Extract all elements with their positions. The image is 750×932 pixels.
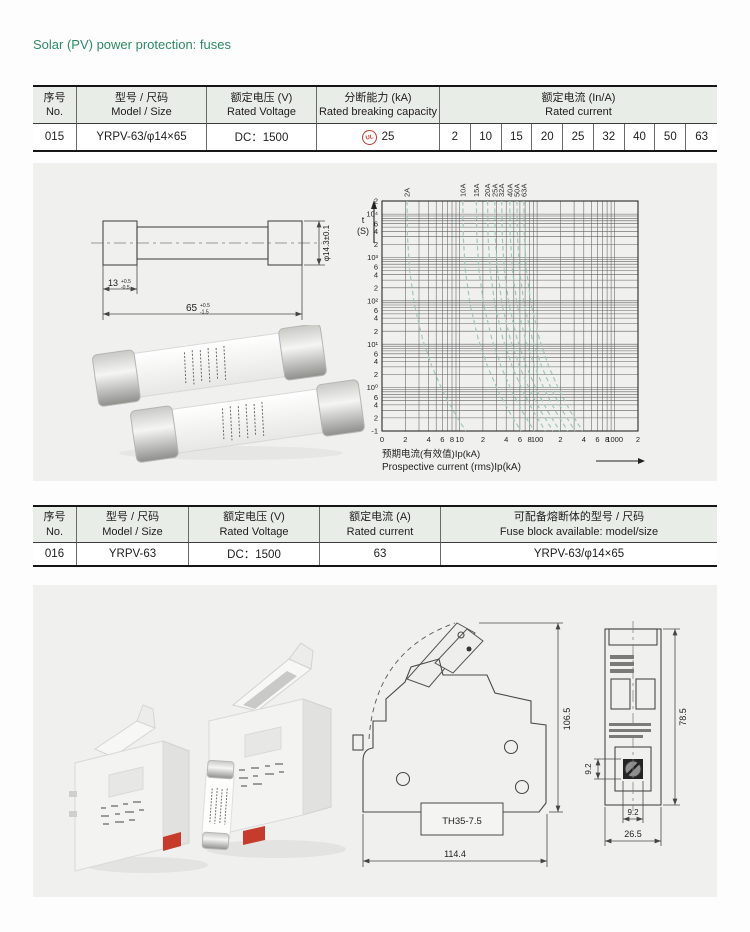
curve-40A xyxy=(510,201,568,431)
holder-left xyxy=(69,705,189,871)
x-tick: 6 xyxy=(440,435,444,444)
cell-current-20: 20 xyxy=(532,124,563,150)
dim-side: 9.2 xyxy=(585,763,593,775)
cell-current-63: 63 xyxy=(686,124,717,150)
header-current-en: Rated current xyxy=(545,105,612,119)
spec-table-015: 序号 No. 型号 / 尺码 Model / Size 额定电压 (V) Rat… xyxy=(33,85,717,152)
col-header-model: 型号 / 尺码 Model / Size xyxy=(77,507,189,543)
cell-voltage: DC：1500 xyxy=(207,124,317,150)
x-tick: 4 xyxy=(504,435,508,444)
header-no-en: No. xyxy=(46,105,63,119)
y-tick: 4 xyxy=(374,401,378,410)
fuse-tube xyxy=(137,227,268,259)
time-current-chart: 2A10A15A20A25A32A40A50A63A02468102468100… xyxy=(338,173,713,478)
header-current-zh: 额定电流 (A) xyxy=(349,510,411,524)
curve-label-63A: 63A xyxy=(519,184,528,197)
y-tick: 10² xyxy=(367,296,378,305)
y-axis-title-2: (S) xyxy=(357,226,369,236)
header-model-en: Model / Size xyxy=(102,525,163,539)
y-tick: 2 xyxy=(374,283,378,292)
header-voltage-zh: 额定电压 (V) xyxy=(231,91,293,105)
x-tick: 2 xyxy=(558,435,562,444)
x-tick: 6 xyxy=(518,435,522,444)
y-axis-title-1: t xyxy=(362,215,365,225)
cell-no: 016 xyxy=(33,543,77,565)
cell-model: YRPV-63 xyxy=(77,543,189,565)
fuse-cartridge xyxy=(201,760,235,850)
x-tick: 6 xyxy=(595,435,599,444)
dim-height: 78.5 xyxy=(678,708,688,726)
dim-diameter: φ14.3±0.1 xyxy=(322,224,331,261)
x-tick: 10 xyxy=(455,435,463,444)
header-breaking-zh: 分断能力 (kA) xyxy=(344,91,411,105)
cell-current-50: 50 xyxy=(655,124,686,150)
curve-20A xyxy=(488,201,546,431)
dim-cap: 13 xyxy=(108,278,118,288)
cell-breaking: UL 25 xyxy=(317,124,440,150)
dim-cap-tol-bottom: -0.5 xyxy=(121,285,130,291)
fuse-overview-panel: φ14.3±0.1 13 +0.5 -0.5 65 +0.5 -1.5 xyxy=(33,163,717,481)
dim-length-tol-bottom: -1.5 xyxy=(200,310,209,316)
y-tick: 10¹ xyxy=(367,340,378,349)
x-tick: 8 xyxy=(450,435,454,444)
curve-63A xyxy=(524,201,583,431)
cell-current-10: 10 xyxy=(471,124,502,150)
header-model-zh: 型号 / 尺码 xyxy=(115,91,168,105)
curve-label-10A: 10A xyxy=(458,184,467,197)
cell-fuse-block: YRPV-63/φ14×65 xyxy=(441,543,717,565)
fuse-product-photo xyxy=(81,325,369,467)
y-tick: 4 xyxy=(374,357,378,366)
col-header-voltage: 额定电压 (V) Rated Voltage xyxy=(189,507,320,543)
fuse-dimension-drawing: φ14.3±0.1 13 +0.5 -0.5 65 +0.5 -1.5 xyxy=(88,196,350,336)
y-tick: 4 xyxy=(374,270,378,279)
y-tick: 2 xyxy=(374,370,378,379)
curve-label-15A: 15A xyxy=(472,184,481,197)
side-foot xyxy=(353,735,363,750)
y-tick: 10⁴ xyxy=(366,210,378,219)
cell-current: 63 xyxy=(320,543,441,565)
y-tick: 10⁰ xyxy=(367,383,378,392)
curve-label-2A: 2A xyxy=(402,188,411,197)
col-header-current: 额定电流 (A) Rated current xyxy=(320,507,441,543)
ul-certification-icon: UL xyxy=(360,128,377,145)
holder-front-drawing: 78.5 9.2 9.2 26.5 xyxy=(585,613,715,869)
holder-side-drawing: TH35-7.5 106.5 114.4 xyxy=(341,607,581,877)
header-block-zh: 可配备熔断体的型号 / 尺码 xyxy=(514,510,644,524)
cell-voltage: DC：1500 xyxy=(189,543,320,565)
header-model-en: Model / Size xyxy=(111,105,172,119)
cell-current-40: 40 xyxy=(625,124,656,150)
y-tick: 10³ xyxy=(367,253,378,262)
header-block-en: Fuse block available: model/size xyxy=(500,525,658,539)
spec-table-016: 序号 No. 型号 / 尺码 Model / Size 额定电压 (V) Rat… xyxy=(33,505,717,567)
dim-width: 114.4 xyxy=(444,849,466,859)
cell-current-25: 25 xyxy=(563,124,594,150)
x-tick: 4 xyxy=(427,435,431,444)
col-header-voltage: 额定电压 (V) Rated Voltage xyxy=(207,87,317,124)
dim-length-tol-top: +0.5 xyxy=(200,303,210,309)
curve-32A xyxy=(502,201,560,431)
x-tick: 4 xyxy=(582,435,586,444)
header-no-zh: 序号 xyxy=(44,91,66,105)
catalog-page: Solar (PV) power protection: fuses 序号 No… xyxy=(0,0,750,932)
cell-no: 015 xyxy=(33,124,77,150)
y-tick: 2 xyxy=(374,327,378,336)
header-voltage-en: Rated Voltage xyxy=(227,105,296,119)
cell-current-15: 15 xyxy=(502,124,533,150)
header-no-zh: 序号 xyxy=(44,510,66,524)
breaking-value: 25 xyxy=(382,131,395,143)
col-header-breaking: 分断能力 (kA) Rated breaking capacity xyxy=(317,87,440,124)
x-tick: 2 xyxy=(481,435,485,444)
col-header-no: 序号 No. xyxy=(33,507,77,543)
x-tick: 2 xyxy=(636,435,640,444)
fuse-holder-panel: TH35-7.5 106.5 114.4 xyxy=(33,585,717,897)
x-axis-title-en: Prospective current (rms)Ip(kA) xyxy=(382,462,521,473)
holder-body xyxy=(363,659,546,812)
fuse-holder-photo xyxy=(61,623,361,878)
col-header-no: 序号 No. xyxy=(33,87,77,124)
y-tick: 4 xyxy=(374,314,378,323)
dim-screw: 9.2 xyxy=(627,808,639,817)
cell-current-2: 2 xyxy=(440,124,471,150)
plot-border xyxy=(382,201,638,431)
x-tick: 1000 xyxy=(606,435,623,444)
col-header-model: 型号 / 尺码 Model / Size xyxy=(77,87,207,124)
x-tick: 100 xyxy=(531,435,544,444)
y-tick: -1 xyxy=(371,427,378,436)
y-tick: 2 xyxy=(374,414,378,423)
header-voltage-zh: 额定电压 (V) xyxy=(223,510,285,524)
curve-50A xyxy=(517,201,575,431)
cell-current-32: 32 xyxy=(594,124,625,150)
page-title: Solar (PV) power protection: fuses xyxy=(33,37,231,52)
dim-height: 106.5 xyxy=(562,708,572,731)
header-current-en: Rated current xyxy=(347,525,414,539)
cell-model: YRPV-63/φ14×65 xyxy=(77,124,207,150)
header-model-zh: 型号 / 尺码 xyxy=(106,510,159,524)
x-tick: 0 xyxy=(380,435,384,444)
col-header-fuse-block: 可配备熔断体的型号 / 尺码 Fuse block available: mod… xyxy=(441,507,717,543)
header-voltage-en: Rated Voltage xyxy=(219,525,288,539)
x-axis-arrowhead xyxy=(638,458,645,464)
col-header-current: 额定电流 (In/A) Rated current xyxy=(440,87,717,124)
dim-rail: TH35-7.5 xyxy=(442,816,482,827)
header-breaking-en: Rated breaking capacity xyxy=(319,105,437,119)
header-no-en: No. xyxy=(46,525,63,539)
x-axis-title-zh: 预期电流(有效值)Ip(kA) xyxy=(382,448,480,460)
header-current-zh: 额定电流 (In/A) xyxy=(542,91,616,105)
dim-length: 65 xyxy=(186,303,198,314)
x-tick: 2 xyxy=(403,435,407,444)
dim-width: 26.5 xyxy=(624,829,642,839)
